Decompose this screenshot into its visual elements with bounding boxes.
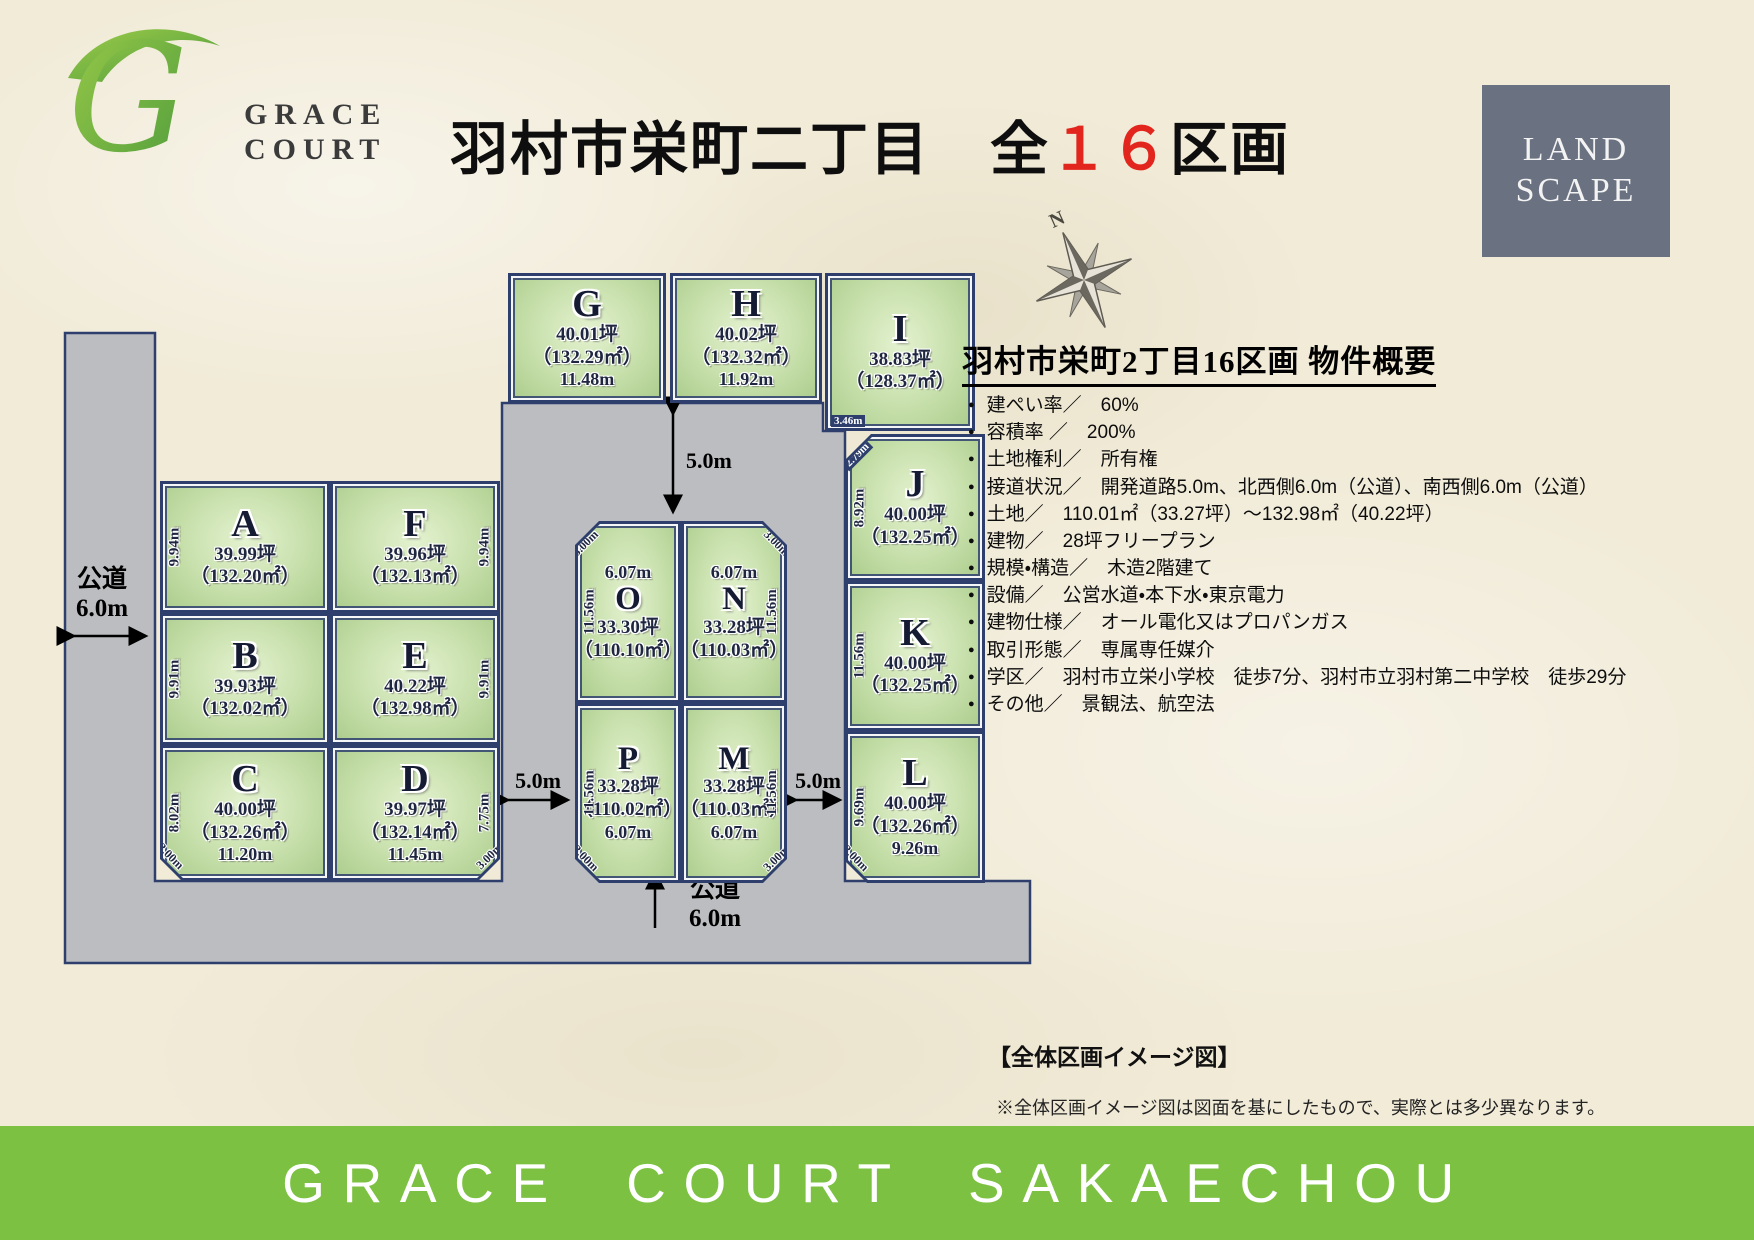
plot-O: 6.07mO33.30坪（110.10㎡）11.56m3.00m bbox=[575, 521, 681, 703]
plot-area-sqm: （132.20㎡） bbox=[190, 566, 299, 589]
plot-label-group: D39.97坪（132.14㎡）11.45m bbox=[337, 752, 493, 874]
plot-label-group: F39.96坪（132.13㎡） bbox=[337, 488, 493, 606]
plot-area-tsubo: 40.01坪 bbox=[556, 324, 618, 347]
plot-P: P33.28坪（110.02㎡）6.07m11.56m3.00m bbox=[575, 703, 681, 883]
logo-wordmark: GRACE COURT bbox=[244, 98, 387, 167]
plot-area-sqm: （132.02㎡） bbox=[190, 698, 299, 721]
plot-F: F39.96坪（132.13㎡）9.94m bbox=[330, 481, 500, 613]
badge-line-1: LAND bbox=[1523, 130, 1629, 171]
overview-item: その他／ 景観法、航空法 bbox=[968, 693, 1626, 716]
badge-line-2: SCAPE bbox=[1516, 171, 1637, 212]
plot-area-tsubo: 40.00坪 bbox=[884, 793, 946, 816]
plot-area-sqm: （110.03㎡） bbox=[680, 640, 788, 663]
road-label-center-gap: 5.0m bbox=[506, 768, 570, 794]
plot-area-sqm: （132.26㎡） bbox=[860, 816, 969, 839]
plot-letter: K bbox=[900, 614, 930, 653]
plot-letter: H bbox=[731, 285, 761, 324]
plot-surface: C40.00坪（132.26㎡）11.20m8.02m3.00m bbox=[163, 748, 327, 878]
footer-banner: GRACE COURT SAKAECHOU bbox=[0, 1126, 1754, 1240]
plot-label-group: C40.00坪（132.26㎡）11.20m bbox=[167, 752, 323, 874]
plot-label-group: H40.02坪（132.32㎡）11.92m bbox=[677, 280, 815, 396]
plot-dim-left: 9.91m bbox=[167, 660, 184, 699]
plot-area-sqm: （132.25㎡） bbox=[860, 675, 969, 698]
plot-letter: M bbox=[718, 743, 749, 777]
overview-item: 接道状況／ 開発道路5.0m、北西側6.0m（公道）、南西側6.0m（公道） bbox=[968, 476, 1626, 499]
plot-dim-top: 6.07m bbox=[605, 562, 652, 584]
plot-map: 公道 6.0m 5.0m 5.0m 5.0m 公道 6.0m G40.01坪（1… bbox=[40, 268, 1050, 978]
overview-item: 設備／ 公営水道・本下水・東京電力 bbox=[968, 584, 1626, 607]
plot-area-sqm: （128.37㎡） bbox=[845, 371, 954, 394]
plot-area-tsubo: 40.00坪 bbox=[884, 504, 946, 527]
plot-dim-right: 11.56m bbox=[764, 589, 781, 634]
plot-letter: P bbox=[618, 743, 638, 777]
plot-C: C40.00坪（132.26㎡）11.20m8.02m3.00m bbox=[160, 745, 330, 881]
plot-area-tsubo: 33.28坪 bbox=[703, 617, 765, 640]
plot-area-tsubo: 33.28坪 bbox=[703, 776, 765, 799]
plot-dim-bottom: 11.45m bbox=[388, 844, 443, 866]
logo-word-2: COURT bbox=[244, 133, 387, 168]
plot-area-sqm: （132.26㎡） bbox=[190, 822, 299, 845]
plot-area-tsubo: 33.28坪 bbox=[597, 776, 659, 799]
flyer-page: { "logo": { "monogram": "G", "name_line1… bbox=[0, 0, 1754, 1240]
plot-label-group: G40.01坪（132.29㎡）11.48m bbox=[515, 280, 659, 396]
plot-surface: M33.28坪（110.03㎡）6.07m11.56m3.00m bbox=[684, 706, 784, 880]
plot-dim-left: 11.56m bbox=[582, 589, 599, 634]
grace-court-logo: G GRACE COURT bbox=[48, 14, 468, 184]
plot-label-group: J40.00坪（132.25㎡） bbox=[852, 441, 978, 574]
plot-letter: C bbox=[231, 760, 258, 799]
overview-item: 容積率 ／ 200% bbox=[968, 421, 1626, 444]
plot-letter: A bbox=[231, 505, 258, 544]
plot-surface: 6.07mN33.28坪（110.03㎡）11.56m3.00m bbox=[684, 524, 784, 700]
plot-surface: K40.00坪（132.25㎡）11.56m bbox=[848, 584, 982, 728]
plot-I: I38.83坪（128.37㎡）3.46m bbox=[825, 273, 975, 431]
plot-J: J40.00坪（132.25㎡）8.92m2.79m bbox=[845, 434, 985, 581]
plot-G: G40.01坪（132.29㎡）11.48m bbox=[508, 273, 666, 403]
plot-letter: J bbox=[906, 465, 925, 504]
plot-dim-corner: 3.46m bbox=[831, 415, 865, 427]
compass-north-label: N bbox=[1046, 208, 1069, 233]
road-label-bottom: 公道 6.0m bbox=[675, 876, 755, 934]
plot-area-tsubo: 39.99坪 bbox=[214, 544, 276, 567]
overview-item: 学区／ 羽村市立栄小学校 徒歩7分、羽村市立羽村第二中学校 徒歩29分 bbox=[968, 666, 1626, 689]
overview-item: 規模・構造／ 木造2階建て bbox=[968, 557, 1626, 580]
plot-area-sqm: （132.25㎡） bbox=[860, 527, 969, 550]
plot-dim-right: 9.91m bbox=[477, 660, 494, 699]
overview-item: 取引形態／ 専属専任媒介 bbox=[968, 639, 1626, 662]
title-lot-count: １６ bbox=[1050, 117, 1170, 182]
plot-label-group: E40.22坪（132.98㎡） bbox=[337, 620, 493, 738]
plot-A: A39.99坪（132.20㎡）9.94m bbox=[160, 481, 330, 613]
overview-item: 土地／ 110.01㎡（33.27坪）～132.98㎡（40.22坪） bbox=[968, 503, 1626, 526]
landscape-badge: LAND SCAPE bbox=[1482, 85, 1670, 257]
plot-surface: B39.93坪（132.02㎡）9.91m bbox=[163, 616, 327, 742]
plot-letter: F bbox=[403, 505, 426, 544]
plot-dim-left: 8.02m bbox=[167, 794, 184, 833]
plot-dim-right: 7.75m bbox=[477, 794, 494, 833]
plot-dim-left: 8.92m bbox=[852, 488, 869, 527]
plot-area-tsubo: 39.96坪 bbox=[384, 544, 446, 567]
plot-area-tsubo: 40.00坪 bbox=[214, 799, 276, 822]
title-suffix: 区画 bbox=[1170, 117, 1290, 182]
plot-M: M33.28坪（110.03㎡）6.07m11.56m3.00m bbox=[681, 703, 787, 883]
plot-dim-right: 9.94m bbox=[477, 528, 494, 567]
plot-letter: N bbox=[722, 583, 746, 617]
plot-surface: P33.28坪（110.02㎡）6.07m11.56m3.00m bbox=[578, 706, 678, 880]
plot-dim-bottom: 9.26m bbox=[892, 838, 939, 860]
plot-E: E40.22坪（132.98㎡）9.91m bbox=[330, 613, 500, 745]
plot-area-tsubo: 39.97坪 bbox=[384, 799, 446, 822]
overview-list: 建ぺい率／ 60%容積率 ／ 200%土地権利／ 所有権接道状況／ 開発道路5.… bbox=[968, 394, 1626, 720]
caption-title: 【全体区画イメージ図】 bbox=[988, 1038, 1241, 1072]
plot-L: L40.00坪（132.26㎡）9.26m9.69m3.00m bbox=[845, 731, 985, 883]
plot-area-sqm: （132.13㎡） bbox=[360, 566, 469, 589]
plot-dim-bottom: 11.92m bbox=[719, 369, 774, 391]
overview-item: 建物／ 28坪フリープラン bbox=[968, 530, 1626, 553]
plot-area-sqm: （132.29㎡） bbox=[532, 347, 641, 370]
page-title: 羽村市栄町二丁目 全１６区画 bbox=[430, 102, 1310, 186]
plot-letter: E bbox=[402, 637, 427, 676]
plot-dim-right: 11.56m bbox=[764, 770, 781, 815]
plot-H: H40.02坪（132.32㎡）11.92m bbox=[670, 273, 822, 403]
plot-area-tsubo: 38.83坪 bbox=[869, 349, 931, 372]
plot-surface: 6.07mO33.30坪（110.10㎡）11.56m3.00m bbox=[578, 524, 678, 700]
plot-dim-top: 6.07m bbox=[711, 562, 758, 584]
plot-surface: G40.01坪（132.29㎡）11.48m bbox=[511, 276, 663, 400]
plot-dim-bottom: 11.48m bbox=[560, 369, 615, 391]
plot-letter: L bbox=[902, 754, 927, 793]
plot-surface: I38.83坪（128.37㎡）3.46m bbox=[828, 276, 972, 428]
plot-dim-bottom: 6.07m bbox=[605, 822, 652, 844]
logo-word-1: GRACE bbox=[244, 98, 387, 133]
plot-dim-left: 9.94m bbox=[167, 528, 184, 567]
road-label-top-gap: 5.0m bbox=[686, 448, 732, 474]
road-label-right-gap: 5.0m bbox=[788, 768, 848, 794]
plot-surface: H40.02坪（132.32㎡）11.92m bbox=[673, 276, 819, 400]
plot-area-tsubo: 40.02坪 bbox=[715, 324, 777, 347]
plot-dim-left: 11.56m bbox=[852, 633, 869, 678]
overview-item: 土地権利／ 所有権 bbox=[968, 448, 1626, 471]
plot-label-group: K40.00坪（132.25㎡） bbox=[852, 588, 978, 724]
overview-item: 建ぺい率／ 60% bbox=[968, 394, 1626, 417]
plot-dim-left: 9.69m bbox=[852, 788, 869, 827]
plot-surface: E40.22坪（132.98㎡）9.91m bbox=[333, 616, 497, 742]
footer-banner-text: GRACE COURT SAKAECHOU bbox=[282, 1151, 1472, 1215]
road-label-left: 公道 6.0m bbox=[62, 566, 142, 624]
plot-B: B39.93坪（132.02㎡）9.91m bbox=[160, 613, 330, 745]
plot-dim-bottom: 6.07m bbox=[711, 822, 758, 844]
overview-item: 建物仕様／ オール電化又はプロパンガス bbox=[968, 611, 1626, 634]
plot-letter: B bbox=[232, 637, 257, 676]
plot-area-sqm: （110.10㎡） bbox=[574, 640, 682, 663]
plot-area-sqm: （132.98㎡） bbox=[360, 698, 469, 721]
plot-surface: L40.00坪（132.26㎡）9.26m9.69m3.00m bbox=[848, 734, 982, 880]
plot-area-tsubo: 40.22坪 bbox=[384, 676, 446, 699]
plot-letter: D bbox=[401, 760, 428, 799]
plot-area-tsubo: 40.00坪 bbox=[884, 653, 946, 676]
title-location: 羽村市栄町二丁目 全 bbox=[450, 117, 1050, 182]
plot-letter: I bbox=[893, 310, 908, 349]
logo-monogram-letter: G bbox=[68, 14, 188, 179]
plot-surface: F39.96坪（132.13㎡）9.94m bbox=[333, 484, 497, 610]
plot-area-sqm: （132.14㎡） bbox=[360, 822, 469, 845]
plot-K: K40.00坪（132.25㎡）11.56m bbox=[845, 581, 985, 731]
plot-label-group: I38.83坪（128.37㎡） bbox=[832, 280, 968, 424]
plot-letter: O bbox=[615, 583, 641, 617]
plot-surface: A39.99坪（132.20㎡）9.94m bbox=[163, 484, 327, 610]
plot-label-group: A39.99坪（132.20㎡） bbox=[167, 488, 323, 606]
plot-letter: G bbox=[572, 285, 602, 324]
caption-note: ※全体区画イメージ図は図面を基にしたもので、実際とは多少異なります。 bbox=[996, 1094, 1605, 1120]
plot-area-tsubo: 39.93坪 bbox=[214, 676, 276, 699]
plot-surface: D39.97坪（132.14㎡）11.45m7.75m3.00m bbox=[333, 748, 497, 878]
plot-area-sqm: （132.32㎡） bbox=[691, 347, 800, 370]
plot-label-group: B39.93坪（132.02㎡） bbox=[167, 620, 323, 738]
overview-title: 羽村市栄町2丁目16区画 物件概要 bbox=[962, 336, 1436, 387]
plot-dim-left: 11.56m bbox=[582, 770, 599, 815]
plot-dim-bottom: 11.20m bbox=[218, 844, 273, 866]
plot-area-tsubo: 33.30坪 bbox=[597, 617, 659, 640]
logo-monogram-icon: G bbox=[48, 14, 228, 179]
plot-D: D39.97坪（132.14㎡）11.45m7.75m3.00m bbox=[330, 745, 500, 881]
plot-surface: J40.00坪（132.25㎡）8.92m2.79m bbox=[848, 437, 982, 578]
plot-N: 6.07mN33.28坪（110.03㎡）11.56m3.00m bbox=[681, 521, 787, 703]
plot-label-group: L40.00坪（132.26㎡）9.26m bbox=[852, 738, 978, 876]
